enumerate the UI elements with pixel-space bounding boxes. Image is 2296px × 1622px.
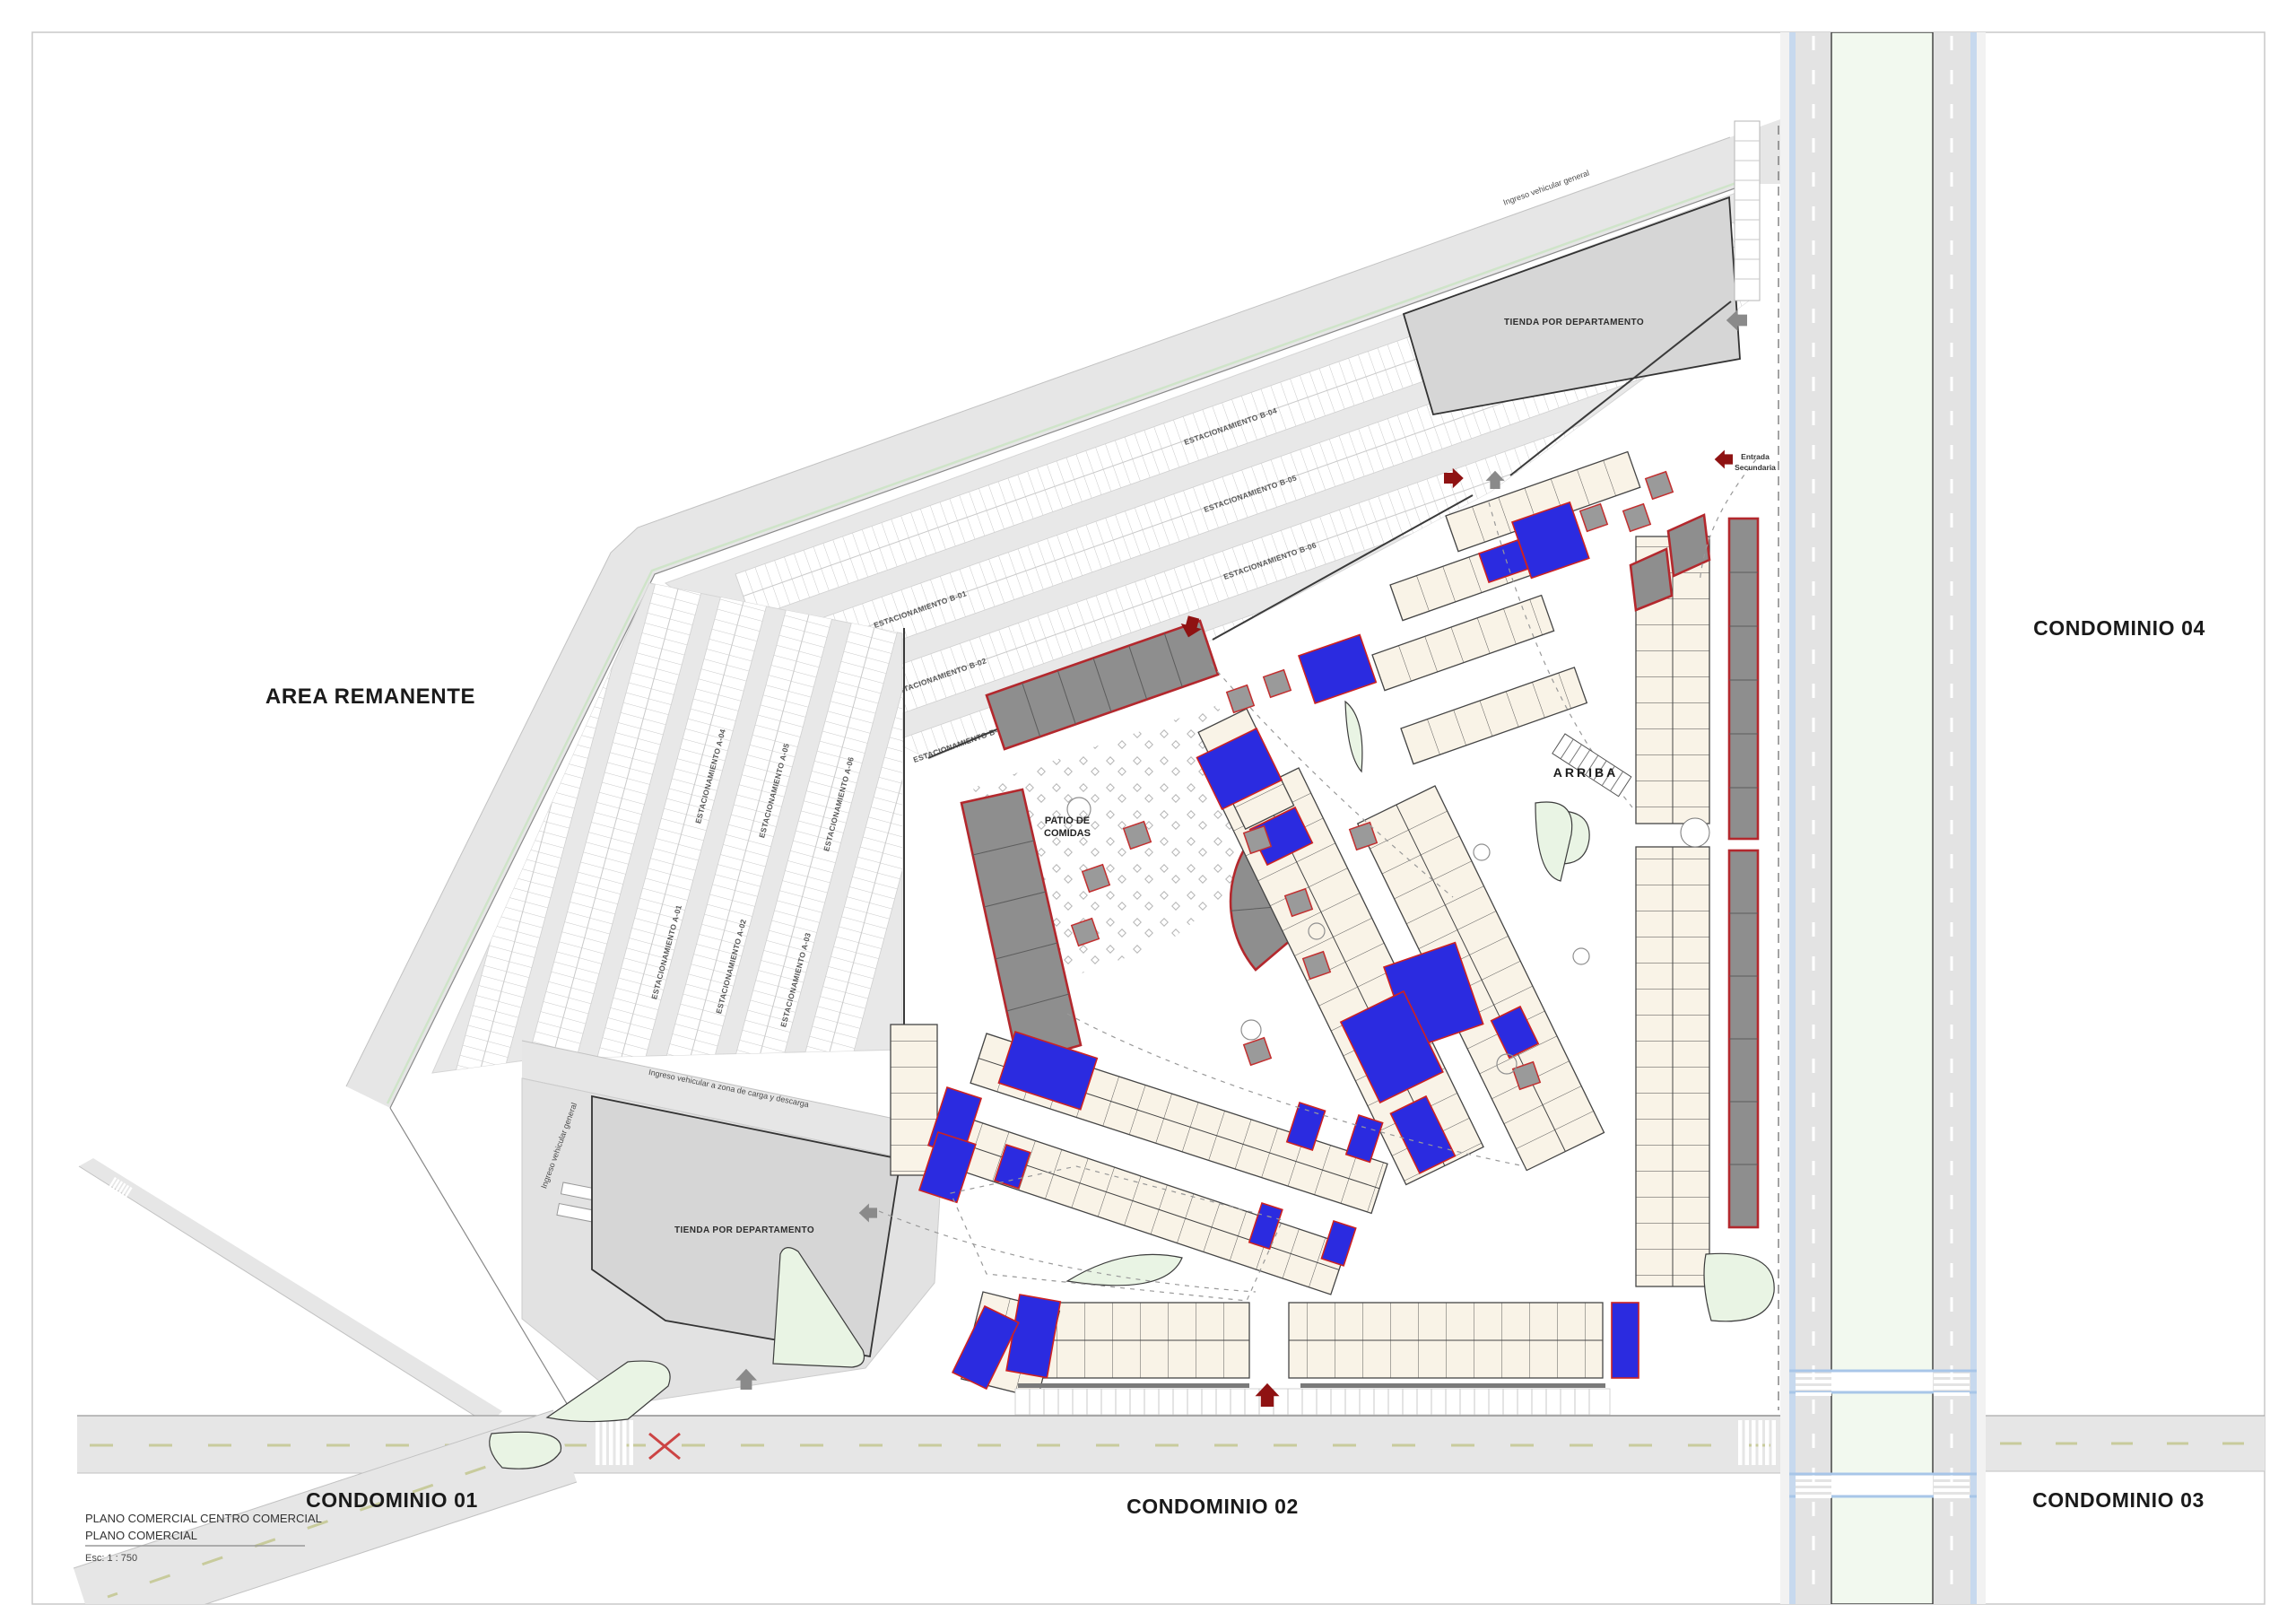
east-road [1984, 1416, 2265, 1471]
site-plan: ESTACIONAMIENTO B-01 ESTACIONAMIENTO B-0… [0, 0, 2296, 1622]
condominio-02-label: CONDOMINIO 02 [1126, 1495, 1299, 1518]
street-parking-row [1015, 1389, 1610, 1415]
scale-label: Esc: 1 : 750 [85, 1553, 137, 1564]
title-line2: PLANO COMERCIAL [85, 1529, 197, 1542]
reserved-unit [1612, 1303, 1639, 1378]
vertical-avenue [1780, 32, 1986, 1604]
bottom-road [77, 1416, 1780, 1473]
department-store-north-label: TIENDA POR DEPARTAMENTO [1504, 318, 1644, 327]
arriba-label: ARRIBA [1553, 765, 1618, 780]
shop-block-bottom-right [1289, 1303, 1603, 1378]
plaza-circle [1681, 818, 1709, 847]
shop-block-bottom-left [1039, 1303, 1249, 1378]
food-court-label-line1: PATIO DE [1045, 815, 1090, 826]
title-line1: PLANO COMERCIAL CENTRO COMERCIAL [85, 1512, 322, 1525]
entrada-secundaria-line2: Secundaria [1735, 463, 1776, 472]
shop-column-700 [891, 1025, 937, 1175]
anchor-strip-east-2 [1729, 850, 1758, 1227]
condominio-01-label: CONDOMINIO 01 [306, 1488, 478, 1512]
department-store-north-parking [1735, 121, 1760, 301]
median-green-middle [1831, 1392, 1933, 1474]
area-remanente-label: AREA REMANENTE [265, 685, 475, 709]
department-store-south-label: TIENDA POR DEPARTAMENTO [674, 1225, 814, 1235]
median-green-south [1831, 1496, 1933, 1604]
curb [1018, 1383, 1249, 1388]
food-court-label-line2: COMIDAS [1044, 828, 1091, 839]
green-island [1704, 1253, 1774, 1321]
shop-column-east-lower [1636, 847, 1709, 1286]
condominio-04-label: CONDOMINIO 04 [2033, 616, 2205, 640]
median-green-north [1831, 32, 1933, 1371]
entrada-secundaria-line1: Entrada [1741, 452, 1770, 461]
condominio-03-label: CONDOMINIO 03 [2032, 1488, 2205, 1512]
anchor-strip-east-1 [1729, 519, 1758, 839]
curb [1300, 1383, 1605, 1388]
